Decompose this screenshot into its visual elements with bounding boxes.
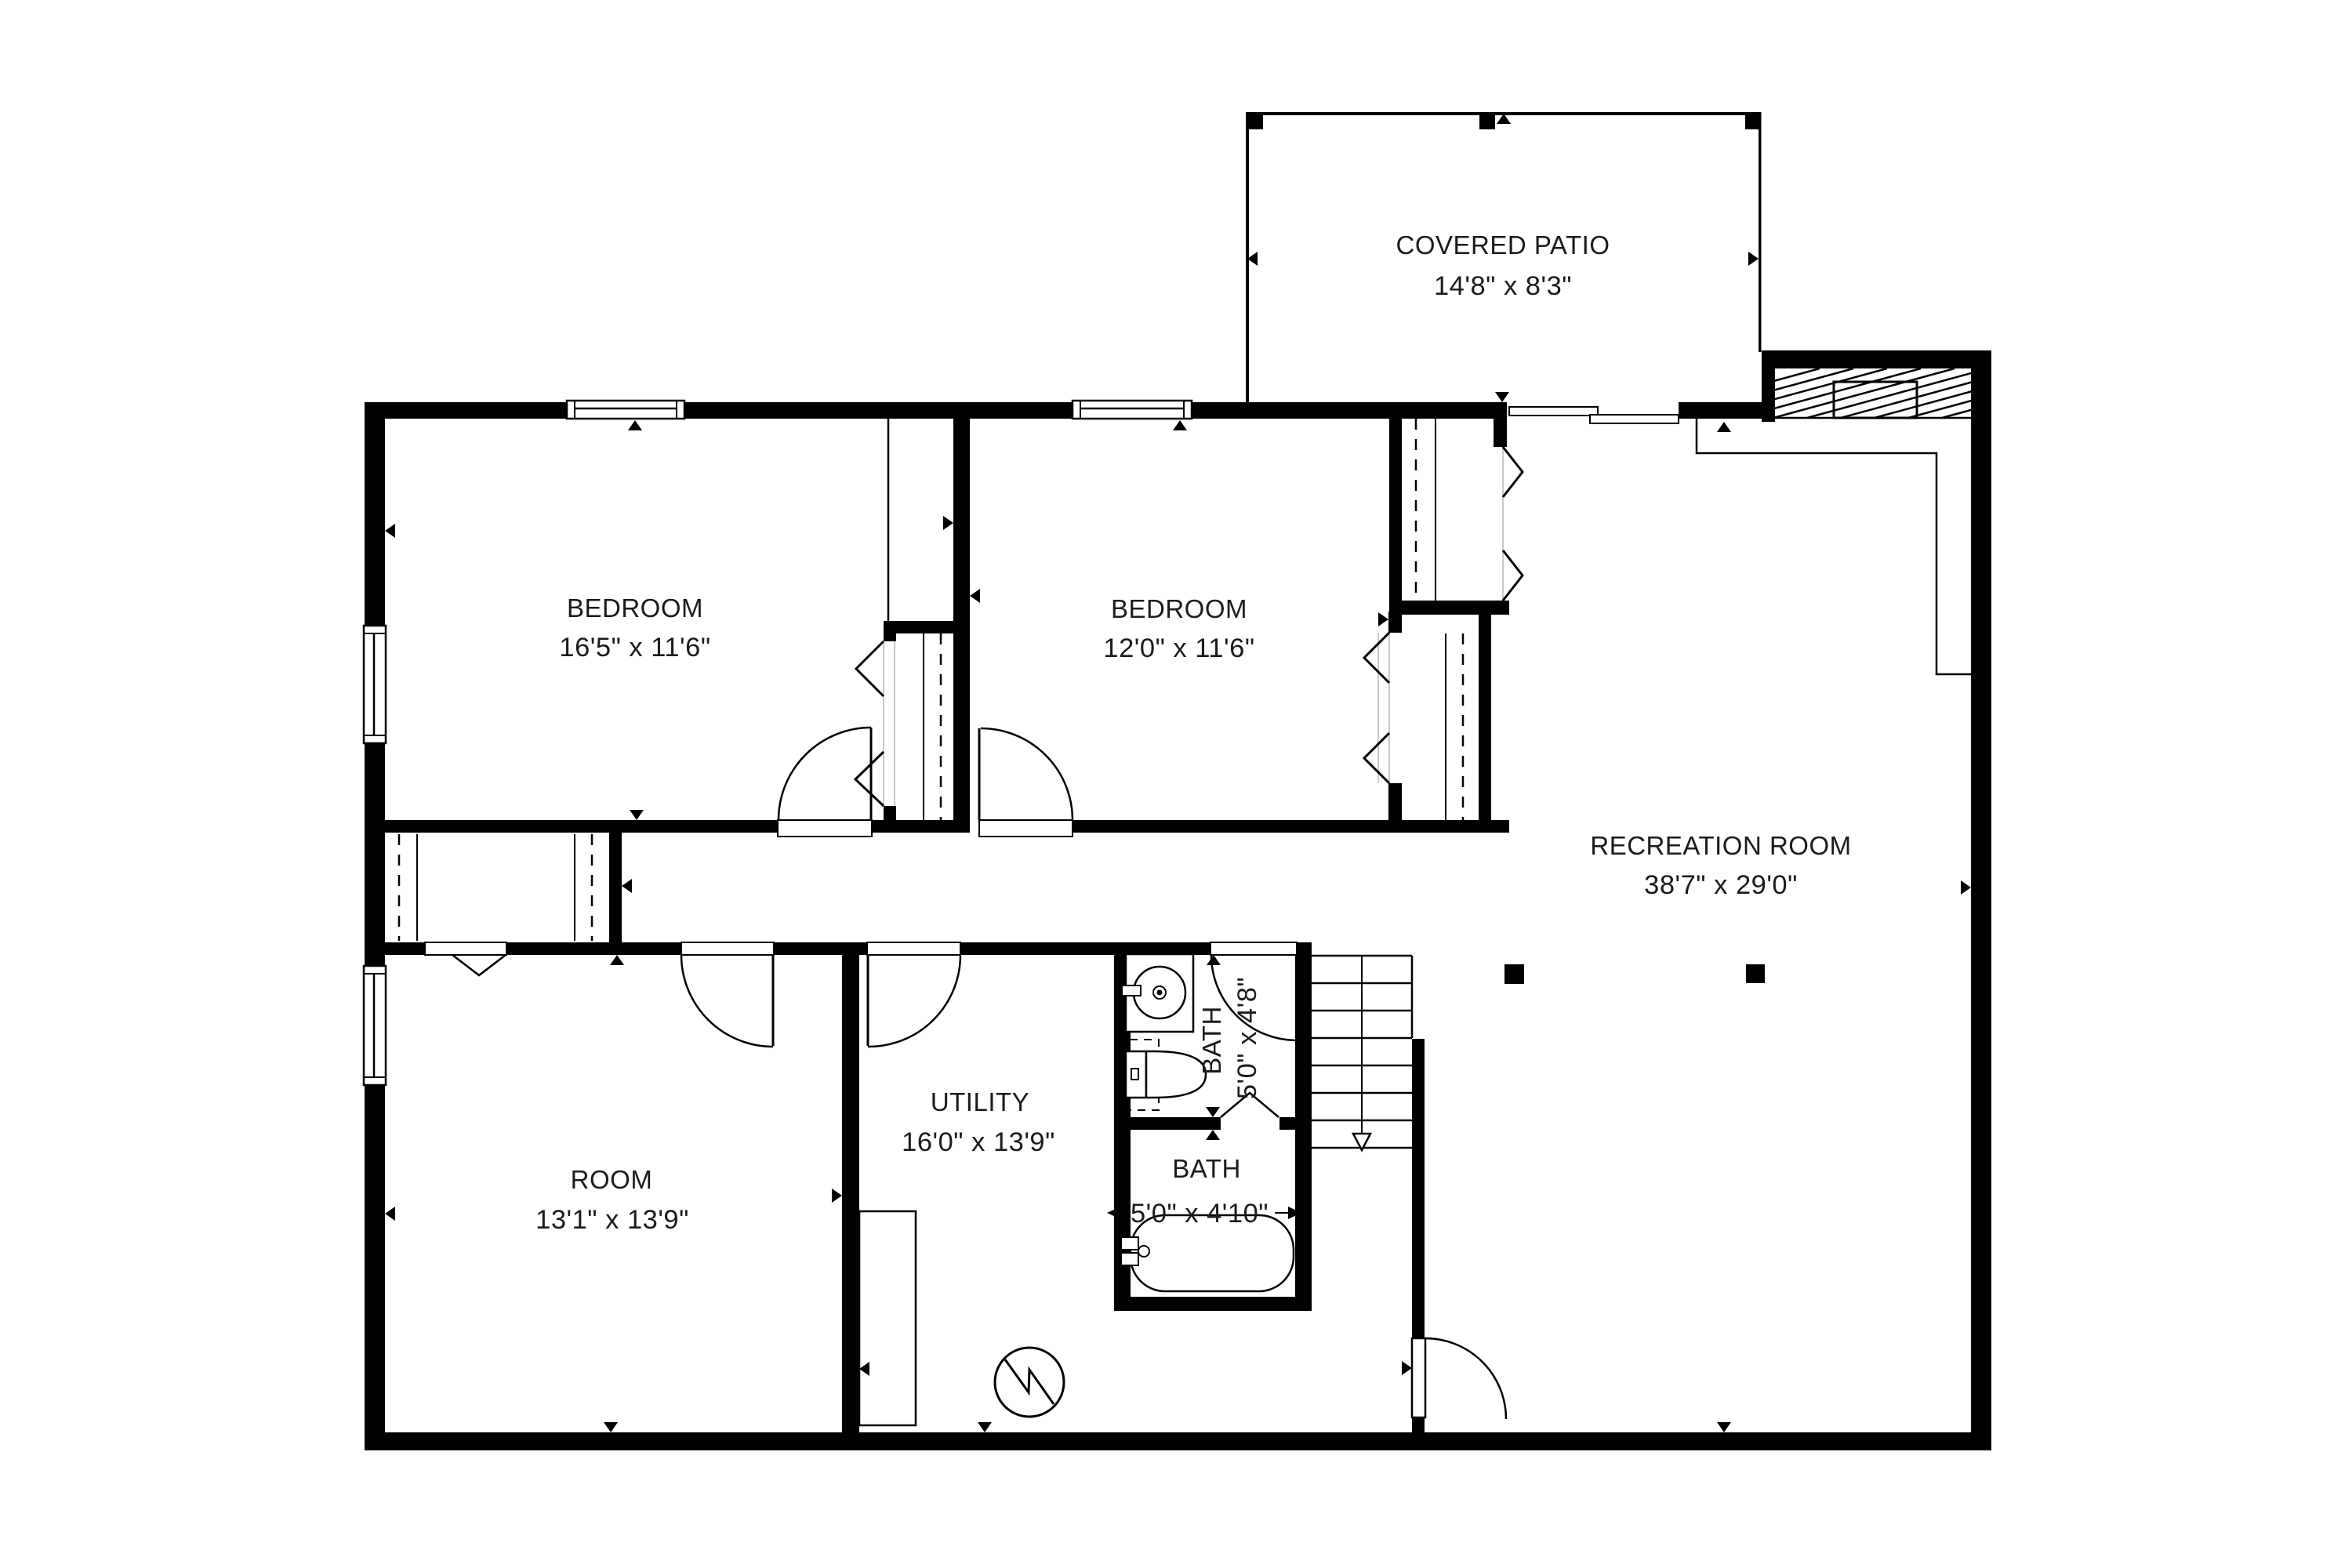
svg-text:UTILITY: UTILITY (931, 1087, 1029, 1116)
svg-text:COVERED PATIO: COVERED PATIO (1396, 230, 1610, 260)
svg-text:RECREATION ROOM: RECREATION ROOM (1590, 831, 1851, 860)
svg-text:5'0" x 4'10": 5'0" x 4'10" (1131, 1199, 1269, 1229)
svg-text:5'0" x 4'8": 5'0" x 4'8" (1232, 977, 1262, 1099)
svg-text:13'1" x 13'9": 13'1" x 13'9" (535, 1205, 689, 1235)
svg-text:BEDROOM: BEDROOM (567, 593, 703, 622)
svg-text:12'0" x 11'6": 12'0" x 11'6" (1103, 633, 1254, 663)
svg-text:38'7" x 29'0": 38'7" x 29'0" (1644, 870, 1798, 900)
svg-text:BATH: BATH (1172, 1154, 1241, 1183)
svg-text:16'0" x 13'9": 16'0" x 13'9" (902, 1127, 1055, 1157)
svg-text:14'8" x 8'3": 14'8" x 8'3" (1434, 271, 1572, 301)
svg-text:BEDROOM: BEDROOM (1111, 594, 1247, 623)
svg-text:ROOM: ROOM (571, 1165, 653, 1194)
svg-text:BATH: BATH (1197, 1006, 1226, 1075)
svg-text:16'5" x 11'6": 16'5" x 11'6" (559, 633, 710, 662)
